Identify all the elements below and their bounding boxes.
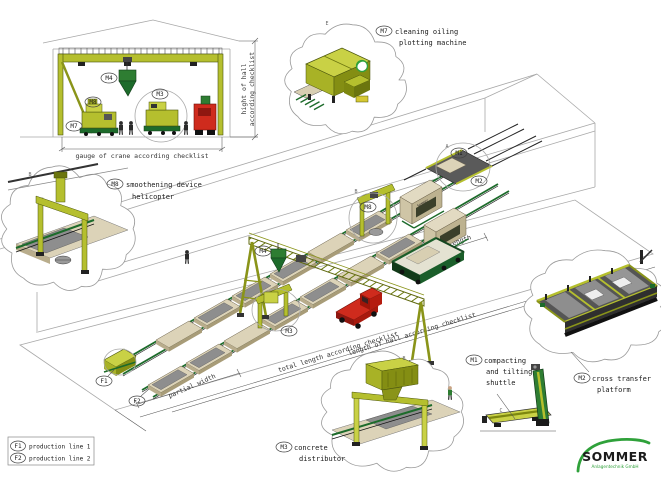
elevation-label-m3: M3 (156, 91, 164, 98)
main-label-m8: M8 (364, 204, 372, 211)
m3-callout-code: M3 (280, 444, 288, 451)
m7-callout-code: M7 (380, 28, 388, 35)
m3-cloud-ref: B (402, 356, 405, 362)
main-label-m3: M3 (285, 328, 293, 335)
legend-f2-label: production line 2 (29, 456, 91, 463)
red-truck (336, 288, 382, 329)
main-label-f2: F2 (133, 398, 141, 405)
worker-figure (185, 250, 189, 264)
m1-detail-ref: C (499, 408, 502, 414)
main-label-m4: M4 (259, 248, 267, 255)
m7-callout-line2: plotting machine (399, 39, 466, 47)
legend-f2-code: F2 (14, 455, 22, 462)
main-end-ref: A (445, 144, 448, 150)
m8-callout-line1: smoothening device (126, 181, 202, 189)
legend-f1-label: production line 1 (29, 444, 91, 451)
m1-callout-line2: and tilting (486, 368, 532, 376)
elevation-label-m8: M8 (89, 99, 97, 106)
m1-callout-code: M1 (470, 357, 478, 364)
main-label-m1: M1 (455, 150, 463, 157)
m2-callout-line2: platform (597, 386, 631, 394)
m8-callout-line2: helicopter (132, 193, 174, 201)
logo-name: SOMMER (582, 449, 648, 464)
plant-layout-drawing: total length according checklist length … (0, 0, 661, 481)
m7-cloud-ref: E (325, 21, 328, 27)
legend-f1-code: F1 (14, 443, 22, 450)
m2-callout-code: M2 (578, 375, 586, 382)
main-label-f1: F1 (100, 378, 108, 385)
dim-hall-height-2: according checklist (248, 52, 256, 126)
logo-tagline: Anlagentechnik GmbH (591, 464, 638, 469)
legend-box: F1 production line 1 F2 production line … (8, 437, 94, 465)
m3-callout-line1: concrete (294, 444, 328, 452)
m1-callout-line3: shuttle (486, 379, 516, 387)
main-m8-ref: B (354, 189, 357, 195)
elevation-label-m7: M7 (70, 123, 78, 130)
dim-gauge-of-crane: gauge of crane according checklist (75, 152, 208, 160)
sommer-logo: SOMMER Anlagentechnik GmbH (578, 439, 649, 471)
dim-hall-height-1: hight of hall (240, 63, 248, 114)
transfer-platform-main (404, 124, 542, 191)
m8-callout-code: M8 (111, 181, 119, 188)
m7-callout-line1: cleaning oiling (395, 28, 458, 36)
drawing-canvas: total length according checklist length … (0, 0, 661, 481)
m3-callout-line2: distributor (299, 455, 345, 463)
m2-callout-line1: cross transfer (592, 375, 651, 383)
elevation-label-m4: M4 (105, 75, 113, 82)
main-label-m2: M2 (475, 178, 483, 185)
m1-callout-line1: compacting (484, 357, 526, 365)
elevation-view: gauge of crane according checklist hight… (20, 20, 258, 160)
m8-cloud-ref: B (28, 172, 31, 178)
